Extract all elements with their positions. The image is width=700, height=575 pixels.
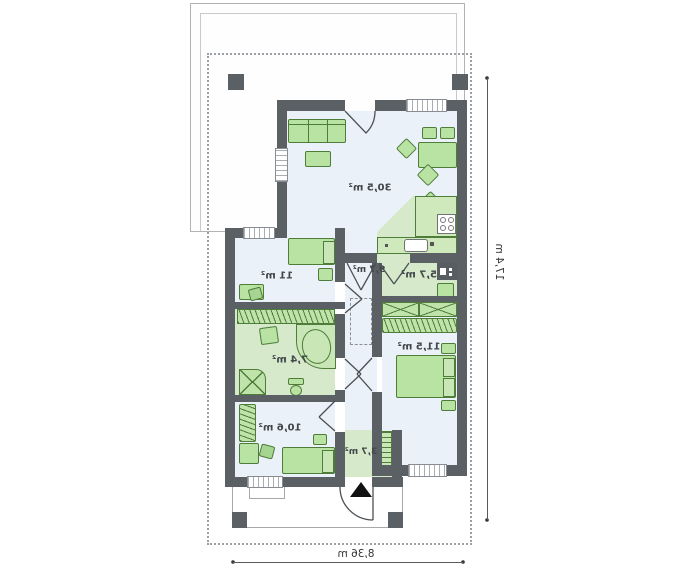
terrace-door — [345, 111, 375, 133]
entrance-arrow-icon — [350, 482, 372, 497]
area-label-hallway: 9,7 m² — [353, 265, 385, 275]
door-swing-overlay — [0, 0, 700, 575]
dimension-label-vertical: 17,4 m — [493, 244, 505, 281]
dimension-line-vertical — [487, 78, 488, 520]
dimension-label-horizontal: 8,36 m — [338, 548, 375, 560]
area-label-living: 30,5 m² — [349, 183, 392, 194]
area-label-pantry: 5,7 m² — [401, 270, 437, 281]
area-label-entrance-hall: 3,7 m² — [345, 447, 377, 457]
floor-plan: 30,5 m² 9,7 m² 5,7 m² 11 m² 7,4 m² 11,5 … — [0, 0, 700, 575]
dimension-line-horizontal — [233, 562, 463, 563]
bathroom-door — [345, 359, 361, 389]
area-label-bathroom: 7,4 m² — [272, 355, 308, 366]
area-label-bedroom-left: 11 m² — [261, 271, 293, 282]
area-label-bedroom-right: 11,5 m² — [398, 342, 441, 353]
bedroom-right-door — [357, 358, 372, 391]
area-label-bedroom-bottom: 10,6 m² — [259, 423, 302, 434]
bedroom-bottom-door — [319, 401, 335, 431]
